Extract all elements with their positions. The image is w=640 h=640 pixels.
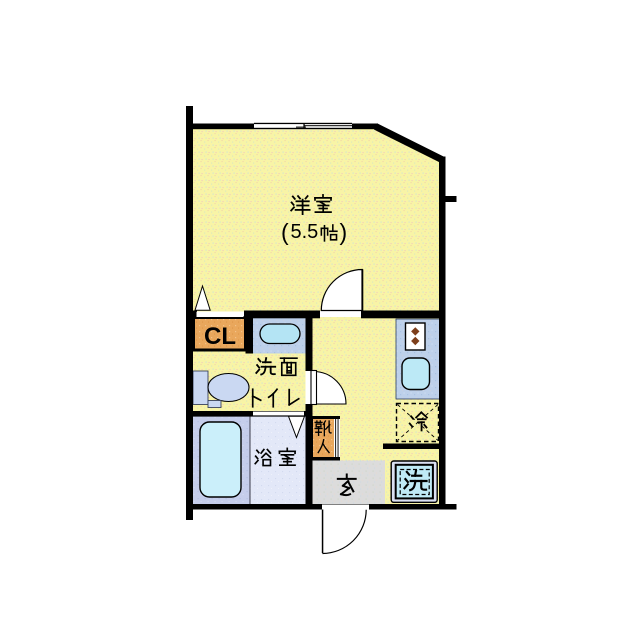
svg-text:CL: CL xyxy=(204,323,236,350)
svg-text:(: ( xyxy=(281,219,289,245)
svg-text:): ) xyxy=(340,219,348,245)
svg-text:5.5: 5.5 xyxy=(291,221,319,243)
